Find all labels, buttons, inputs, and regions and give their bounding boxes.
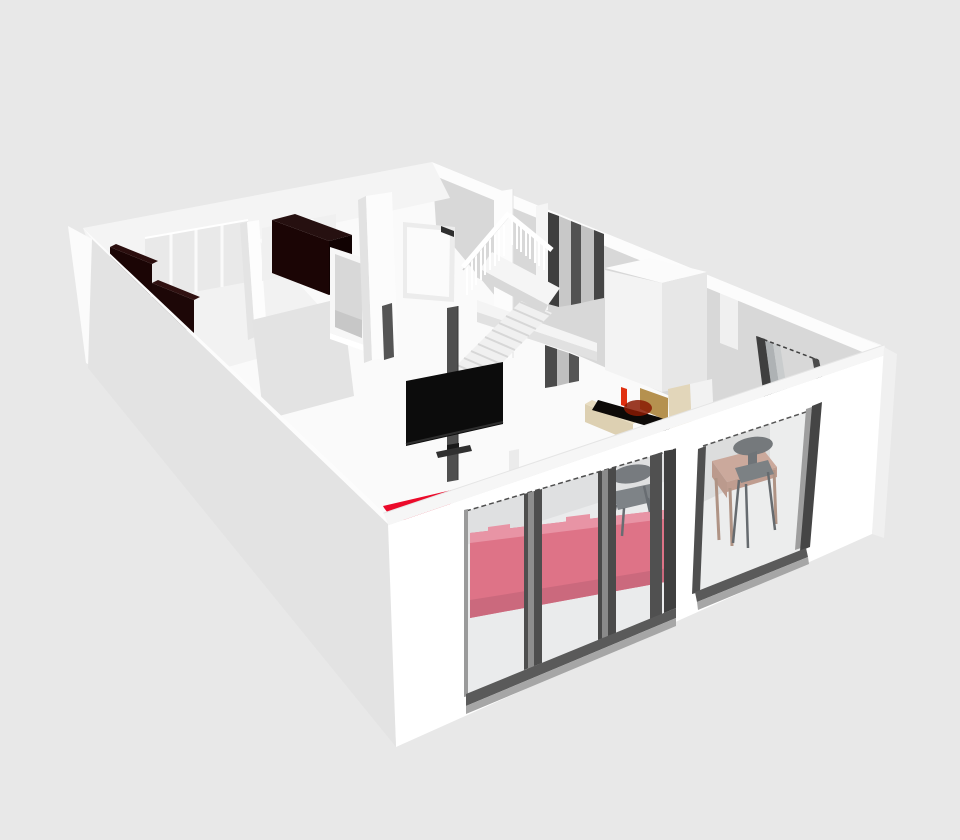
door-mullion xyxy=(650,452,662,624)
fire-glow xyxy=(624,400,652,416)
door-edge-dark xyxy=(382,303,394,360)
door-mullion-inner xyxy=(602,469,608,638)
window-glass xyxy=(559,216,571,307)
chimney xyxy=(605,258,707,392)
partition-wall-2 xyxy=(358,192,398,363)
window-mullion xyxy=(594,230,604,300)
window-mullion xyxy=(571,221,581,305)
3d-view[interactable] xyxy=(0,0,960,840)
window-glass xyxy=(581,225,594,303)
wall-strip xyxy=(720,291,738,350)
entry-door xyxy=(403,222,455,302)
render-canvas xyxy=(0,0,960,840)
door-mullion-inner xyxy=(528,491,534,669)
door-edge xyxy=(464,509,468,697)
door-jamb xyxy=(664,449,676,613)
